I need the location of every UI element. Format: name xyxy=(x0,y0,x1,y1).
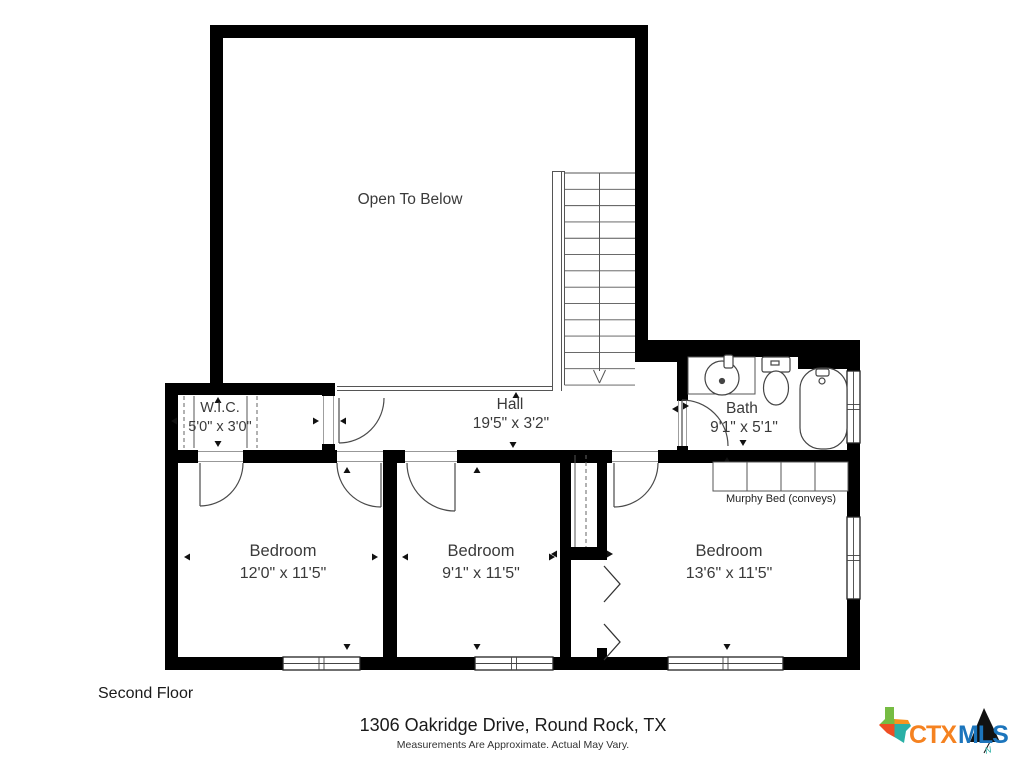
dimension-arrow xyxy=(344,644,351,650)
dimension-arrow xyxy=(683,403,689,410)
sink-drain xyxy=(720,379,725,384)
dimension-arrow xyxy=(215,441,222,447)
tub-faucet xyxy=(816,369,829,376)
murphy-bed-cabinet xyxy=(713,462,848,491)
wall-segment xyxy=(635,25,648,362)
toilet-bowl xyxy=(764,371,789,405)
dimension-arrow xyxy=(184,554,190,561)
floor-label: Second Floor xyxy=(98,685,194,702)
murphy-bed-label: Murphy Bed (conveys) xyxy=(726,493,836,505)
address-title: 1306 Oakridge Drive, Round Rock, TX xyxy=(360,715,667,735)
wall-segment xyxy=(165,657,283,670)
dimension-arrow xyxy=(340,418,346,425)
wall-segment xyxy=(597,648,607,657)
wall-segment xyxy=(553,657,668,670)
door-swing-arc xyxy=(614,463,658,507)
wall-segment xyxy=(165,450,198,463)
stair-down-arrow xyxy=(594,370,600,383)
wall-segment xyxy=(847,340,860,371)
bath-name: Bath xyxy=(726,400,758,417)
disclaimer-text: Measurements Are Approximate. Actual May… xyxy=(397,739,629,751)
dimension-arrow xyxy=(672,406,678,413)
wall-segment xyxy=(210,25,223,395)
bedroom-right-dims: 13'6" x 11'5" xyxy=(686,565,773,582)
bedroom-left-name: Bedroom xyxy=(250,542,317,560)
dimension-arrow xyxy=(510,442,517,448)
dimension-arrow xyxy=(607,551,613,558)
bifold-panel xyxy=(604,566,620,602)
texas-quadrant xyxy=(877,706,895,724)
open-area-label: Open To Below xyxy=(358,191,464,208)
sink-faucet xyxy=(724,355,733,368)
wall-segment xyxy=(658,450,860,463)
wall-segment xyxy=(165,383,335,395)
bedroom-left-dims: 12'0" x 11'5" xyxy=(240,565,327,582)
wic-dims: 5'0" x 3'0" xyxy=(188,419,251,435)
tub-drain xyxy=(819,378,825,384)
wall-segment xyxy=(165,383,178,670)
floor-plan-page: Open To Below W.I.C. 5'0" x 3'0" Hall 19… xyxy=(0,0,1024,768)
stair-down-arrow xyxy=(600,370,606,383)
wall-segment xyxy=(597,450,607,560)
dimension-arrow xyxy=(372,554,378,561)
ctxmls-logo: CTX MLS N xyxy=(877,706,1008,756)
door-swing-arc xyxy=(200,463,243,506)
bedroom-right-name: Bedroom xyxy=(696,542,763,560)
texas-quadrant xyxy=(877,724,895,746)
wall-segment xyxy=(457,450,612,463)
logo-ctx-text: CTX xyxy=(909,721,957,749)
staircase xyxy=(565,171,636,385)
wall-segment xyxy=(322,383,335,396)
dimension-arrow xyxy=(313,418,319,425)
door-hall-to-middle-bedroom xyxy=(407,463,455,511)
windows xyxy=(283,371,860,670)
dimension-arrow xyxy=(474,644,481,650)
door-swing-arc xyxy=(337,463,381,507)
wall-segment xyxy=(210,25,648,38)
dimension-arrow xyxy=(344,467,351,473)
dimension-arrow xyxy=(474,467,481,473)
door-wic-to-bedroom xyxy=(200,463,243,506)
wic-name: W.I.C. xyxy=(200,400,239,416)
footer: Second Floor 1306 Oakridge Drive, Round … xyxy=(98,685,666,751)
bifold-closet-doors xyxy=(604,566,620,660)
toilet-button xyxy=(771,361,779,365)
logo-mls-text: MLS xyxy=(958,721,1008,749)
dimension-arrow xyxy=(724,644,731,650)
bath-dims: 9'1" x 5'1" xyxy=(710,419,778,436)
wall-segment xyxy=(243,450,337,463)
texas-icon xyxy=(877,706,913,746)
door-hall-to-left-bedroom xyxy=(337,463,381,507)
wall-segment xyxy=(798,357,850,369)
wall-segment xyxy=(677,360,688,401)
dimension-arrow xyxy=(402,554,408,561)
wall-segment xyxy=(383,450,397,670)
hall-dims: 19'5" x 3'2" xyxy=(473,415,549,432)
wall-segment xyxy=(783,657,860,670)
wall-segment xyxy=(560,547,607,560)
doors xyxy=(200,398,728,660)
dimension-arrow xyxy=(740,440,747,446)
door-swing-arc xyxy=(407,463,455,511)
bedroom-middle-dims: 9'1" x 11'5" xyxy=(442,565,520,582)
door-hall-to-right-bedroom xyxy=(614,463,658,507)
floor-plan-drawing: Open To Below W.I.C. 5'0" x 3'0" Hall 19… xyxy=(0,0,1024,768)
hall-name: Hall xyxy=(497,396,524,413)
wall-segment xyxy=(360,657,475,670)
bedroom-middle-name: Bedroom xyxy=(448,542,515,560)
thin-lines xyxy=(184,171,687,547)
